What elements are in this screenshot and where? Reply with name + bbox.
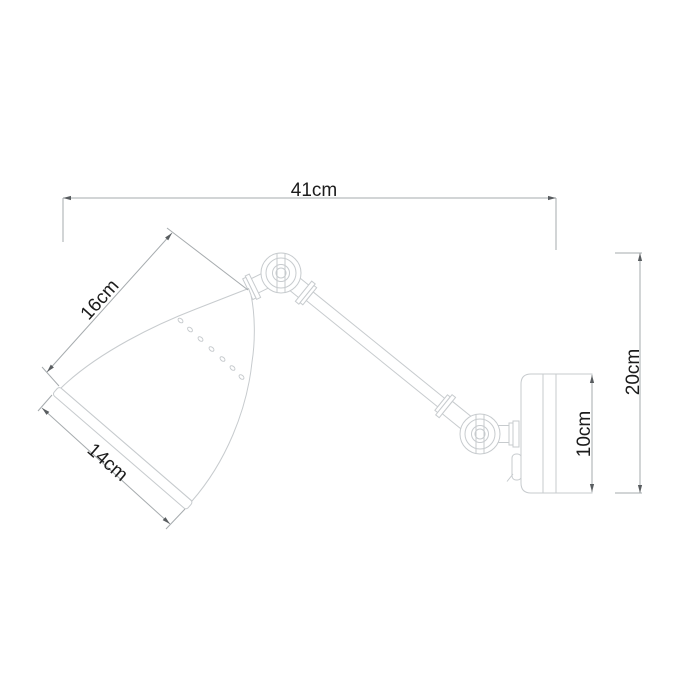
arm bbox=[285, 273, 474, 433]
dimension-label: 10cm bbox=[574, 411, 595, 457]
switch bbox=[507, 454, 522, 482]
upper-joint bbox=[261, 253, 301, 293]
dimension-label: 41cm bbox=[291, 180, 337, 201]
dimension-overall-width: 41cm bbox=[63, 180, 556, 250]
connector-flange-small bbox=[509, 423, 513, 445]
arm-tube bbox=[306, 292, 444, 407]
dimension-label: 20cm bbox=[623, 349, 644, 395]
dimension-label: 16cm bbox=[77, 276, 124, 325]
extension-line bbox=[166, 509, 185, 529]
extension-line bbox=[167, 228, 248, 290]
extension-line bbox=[42, 367, 59, 386]
lamp-dimension-drawing: 41cm 16cm 14cm 20cm 10cm bbox=[0, 0, 700, 700]
connector-flange-big bbox=[513, 421, 519, 447]
switch-body bbox=[512, 454, 522, 480]
extension-line bbox=[38, 395, 52, 411]
diagram-canvas: 41cm 16cm 14cm 20cm 10cm bbox=[0, 0, 700, 700]
dimension-overall-height: 20cm bbox=[615, 253, 644, 493]
lower-joint bbox=[460, 414, 500, 454]
lamp-drawing bbox=[52, 253, 592, 510]
